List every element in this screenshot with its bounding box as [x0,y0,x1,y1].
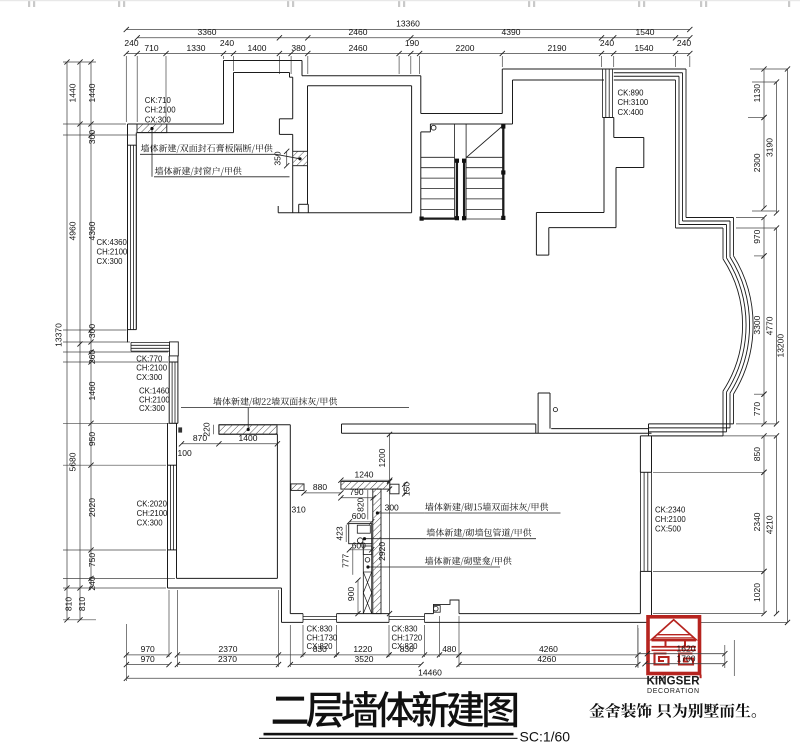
svg-text:950: 950 [87,432,97,446]
svg-text:240: 240 [600,38,614,48]
svg-text:2460: 2460 [349,43,368,53]
svg-text:1220: 1220 [353,644,372,654]
svg-text:1020: 1020 [752,583,762,602]
svg-text:SC:1/60: SC:1/60 [520,729,571,745]
svg-text:CH:2100: CH:2100 [145,106,176,115]
svg-text:423: 423 [334,526,344,540]
svg-text:350: 350 [272,151,282,165]
svg-text:CX:300: CX:300 [136,373,163,382]
svg-text:CH:2100: CH:2100 [139,395,170,404]
svg-text:970: 970 [141,644,155,654]
svg-text:CX:820: CX:820 [392,642,419,651]
svg-text:1440: 1440 [68,83,78,102]
svg-text:240: 240 [677,38,691,48]
svg-text:1240: 1240 [355,470,374,480]
svg-text:970: 970 [752,229,762,243]
svg-text:CH:2100: CH:2100 [136,364,167,373]
svg-text:770: 770 [752,402,762,416]
svg-text:CX:500: CX:500 [655,525,682,534]
svg-text:2370: 2370 [218,654,237,664]
svg-text:3190: 3190 [764,138,774,157]
svg-text:CH:2100: CH:2100 [137,509,168,518]
svg-text:CX:300: CX:300 [97,257,124,266]
svg-text:CK:890: CK:890 [618,89,645,98]
svg-text:13360: 13360 [396,19,420,29]
svg-text:880: 880 [313,482,327,492]
svg-text:CH:2100: CH:2100 [655,515,686,524]
svg-text:CX:400: CX:400 [618,108,645,117]
svg-text:810: 810 [77,597,87,611]
svg-text:1200: 1200 [377,448,387,467]
svg-text:CX:300: CX:300 [139,404,166,413]
svg-text:300: 300 [87,130,97,144]
svg-text:4260: 4260 [537,654,556,664]
svg-text:CK:2020: CK:2020 [137,500,168,509]
svg-text:1540: 1540 [635,43,654,53]
svg-text:4770: 4770 [764,316,774,335]
svg-text:CK:830: CK:830 [307,625,334,634]
svg-text:777: 777 [341,553,351,567]
svg-text:CH:2100: CH:2100 [97,248,128,257]
svg-text:1400: 1400 [248,43,267,53]
svg-text:2020: 2020 [87,498,97,517]
svg-text:2340: 2340 [752,512,762,531]
svg-text:1620: 1620 [677,644,696,654]
svg-text:4260: 4260 [539,644,558,654]
svg-text:480: 480 [442,644,456,654]
svg-text:2200: 2200 [456,43,475,53]
svg-text:CH:1720: CH:1720 [392,633,423,642]
svg-text:900: 900 [346,587,356,601]
svg-text:1130: 1130 [752,84,762,103]
svg-text:380: 380 [291,43,305,53]
svg-text:13370: 13370 [54,323,64,347]
svg-text:190: 190 [405,38,419,48]
svg-text:CX:300: CX:300 [145,115,172,124]
svg-text:310: 310 [292,505,306,515]
svg-text:5680: 5680 [68,452,78,471]
svg-text:1440: 1440 [87,83,97,102]
svg-text:CK:770: CK:770 [136,355,163,364]
svg-text:4360: 4360 [87,221,97,240]
svg-text:600: 600 [352,511,366,521]
svg-text:CH:1730: CH:1730 [307,633,338,642]
svg-text:1400: 1400 [239,433,258,443]
svg-text:CK:1460: CK:1460 [139,387,170,396]
svg-text:CK:830: CK:830 [392,625,419,634]
svg-text:1330: 1330 [187,43,206,53]
svg-text:14460: 14460 [418,667,442,677]
svg-text:1460: 1460 [87,381,97,400]
svg-text:820: 820 [355,497,365,511]
svg-text:2460: 2460 [349,27,368,37]
svg-text:150: 150 [402,482,412,496]
svg-text:750: 750 [87,553,97,567]
svg-text:2920: 2920 [377,542,387,561]
svg-text:220: 220 [202,422,212,436]
svg-text:4960: 4960 [68,221,78,240]
svg-text:970: 970 [141,654,155,664]
svg-text:CK:2340: CK:2340 [655,506,686,515]
svg-text:240: 240 [124,38,138,48]
svg-text:850: 850 [752,447,762,461]
svg-text:1700: 1700 [677,654,696,664]
svg-text:2370: 2370 [219,644,238,654]
svg-text:CH:3100: CH:3100 [618,98,649,107]
svg-text:790: 790 [349,487,363,497]
svg-text:CX:820: CX:820 [307,642,334,651]
svg-text:710: 710 [144,43,158,53]
svg-text:810: 810 [64,597,74,611]
svg-text:100: 100 [178,448,192,458]
svg-text:300: 300 [87,324,97,338]
svg-text:CK:710: CK:710 [145,96,172,105]
svg-text:DECORATION: DECORATION [647,688,699,695]
svg-text:3360: 3360 [198,27,217,37]
svg-text:600: 600 [352,540,366,550]
svg-text:300: 300 [385,503,399,513]
svg-text:3520: 3520 [355,654,374,664]
svg-text:CK:4360: CK:4360 [97,238,128,247]
svg-text:KINGSER: KINGSER [647,676,701,688]
svg-text:1540: 1540 [636,27,655,37]
svg-text:240: 240 [220,38,234,48]
svg-text:CX:300: CX:300 [137,519,164,528]
svg-text:13200: 13200 [775,334,785,358]
svg-text:2190: 2190 [548,43,567,53]
svg-text:4390: 4390 [502,27,521,37]
svg-text:2300: 2300 [752,153,762,172]
svg-text:4210: 4210 [764,515,774,534]
